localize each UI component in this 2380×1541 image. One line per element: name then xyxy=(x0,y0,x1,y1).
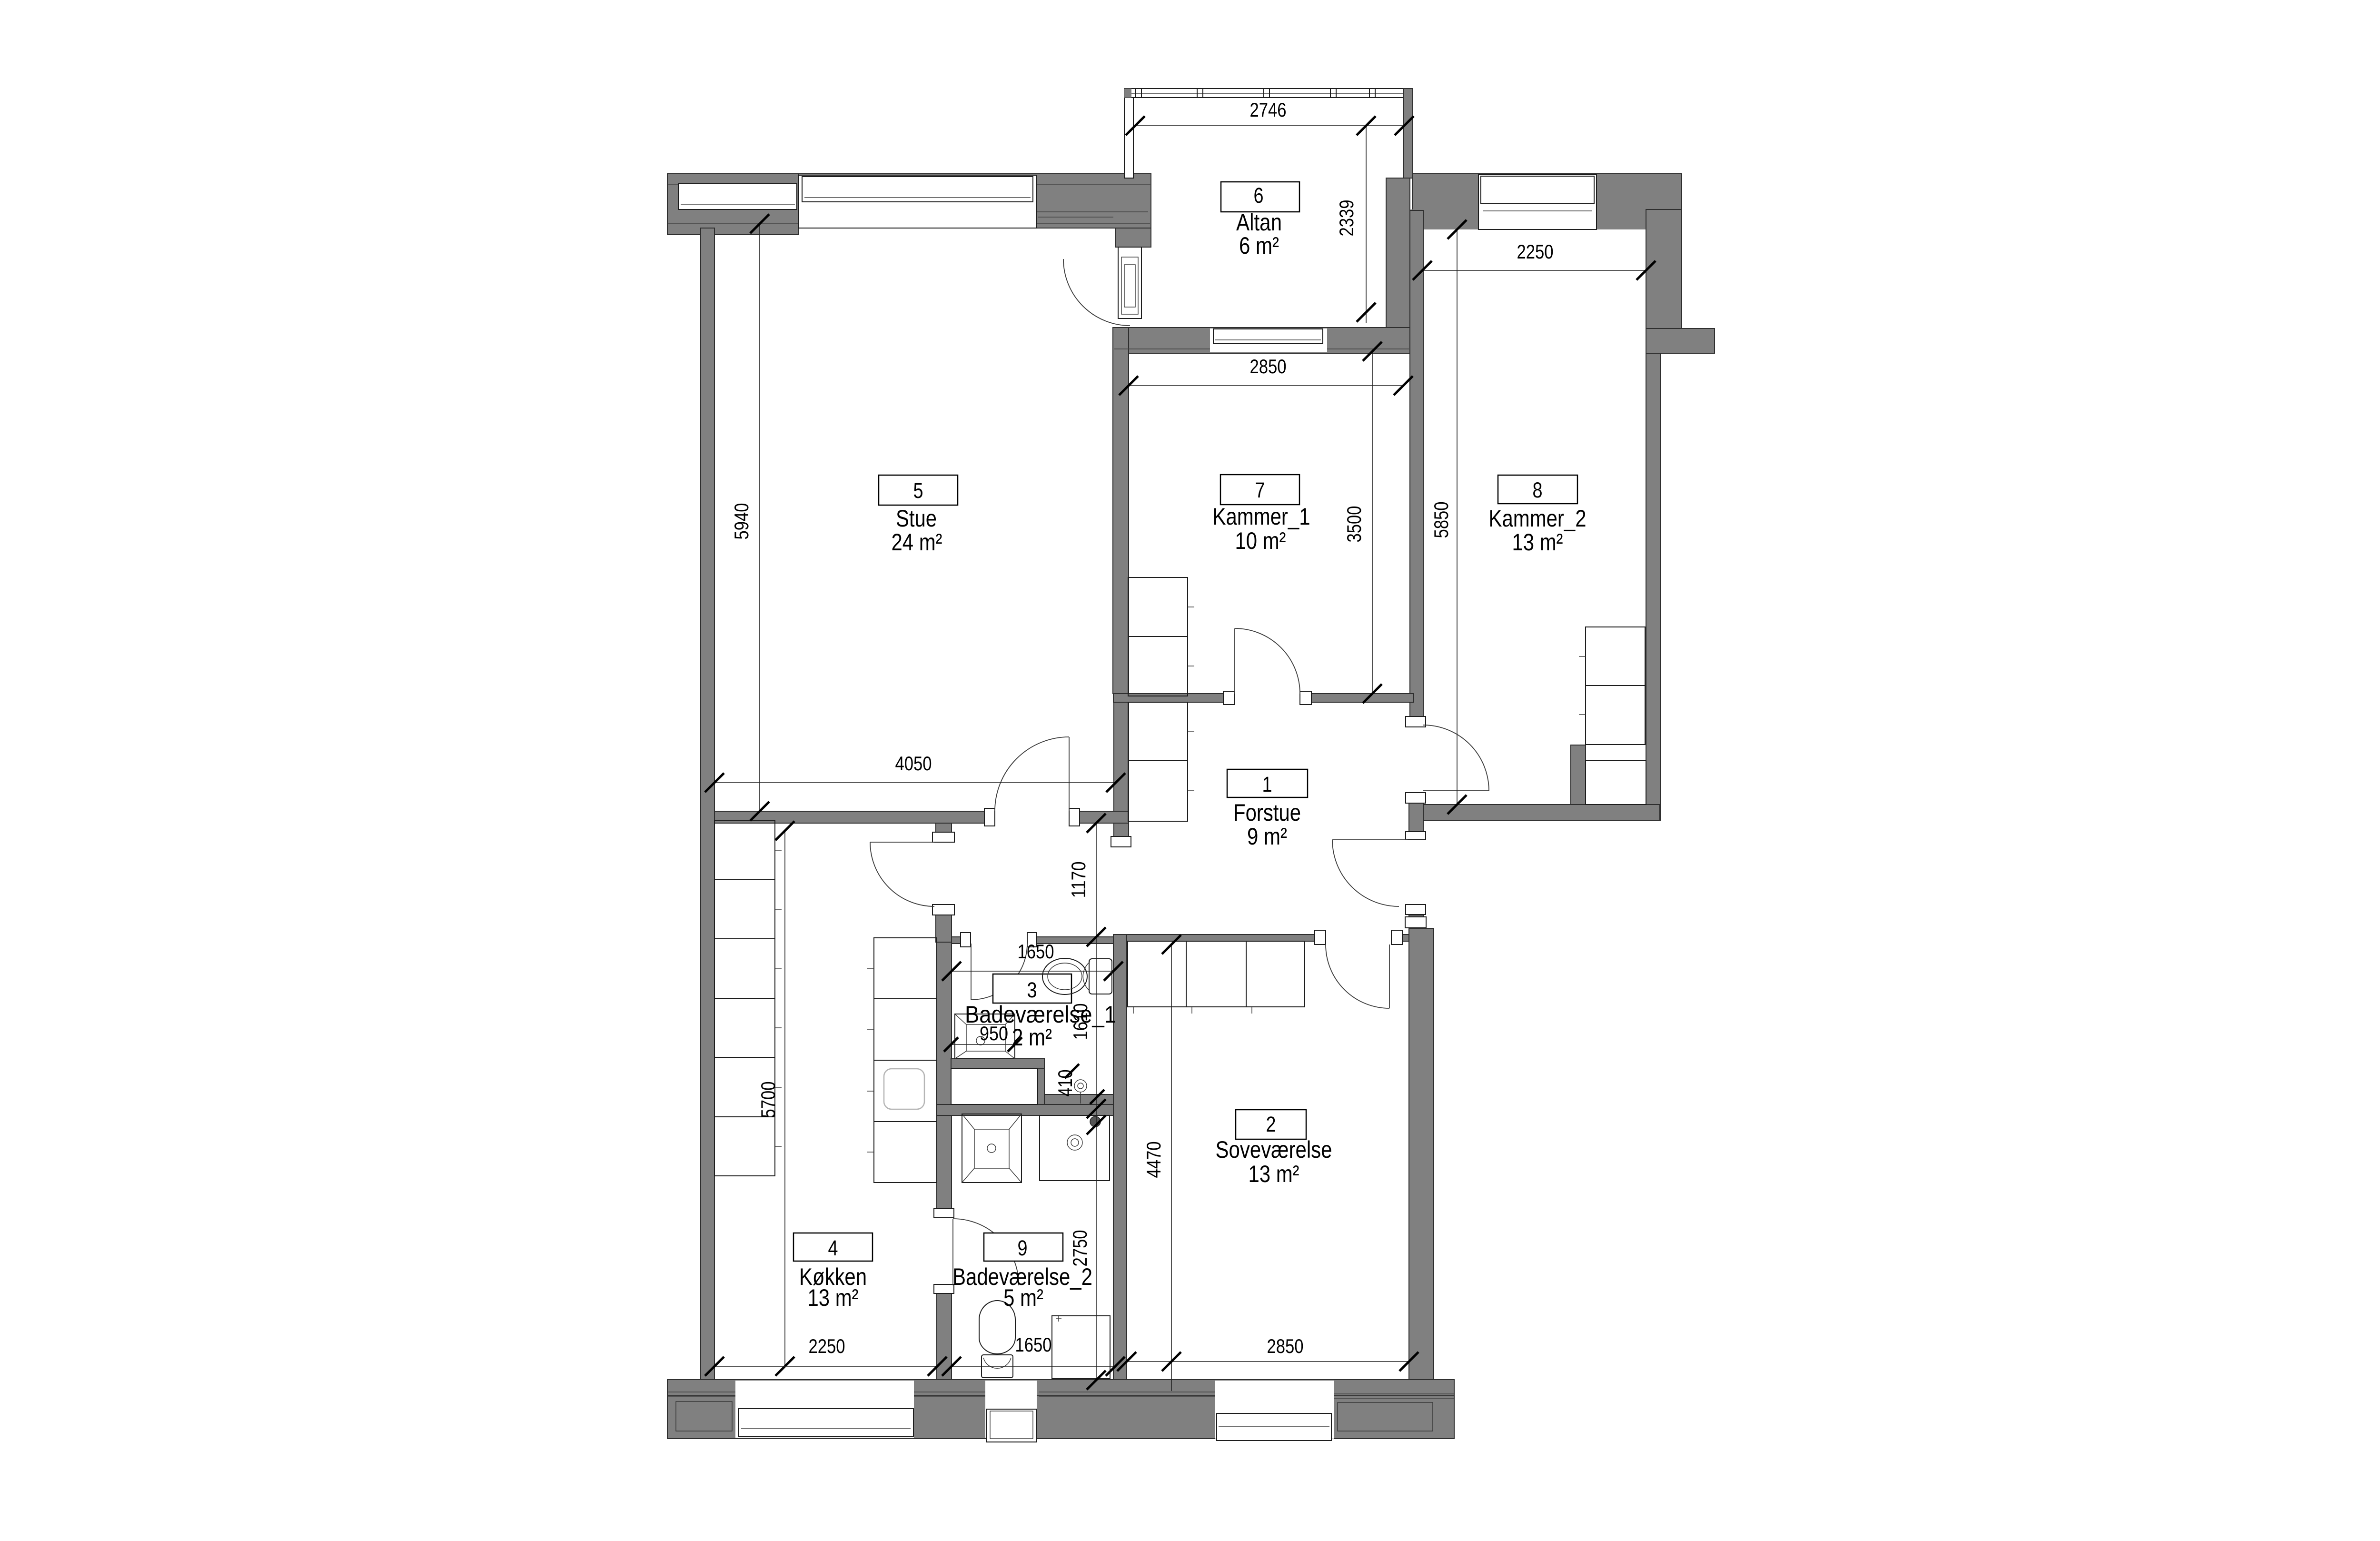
svg-text:10 m²: 10 m² xyxy=(1235,527,1286,554)
svg-text:2250: 2250 xyxy=(809,1335,845,1357)
svg-text:5 m²: 5 m² xyxy=(1003,1284,1043,1311)
svg-text:2250: 2250 xyxy=(1517,240,1554,263)
svg-text:1650: 1650 xyxy=(1015,1333,1052,1356)
svg-text:5940: 5940 xyxy=(730,503,753,540)
svg-text:9: 9 xyxy=(1018,1236,1028,1260)
svg-text:4470: 4470 xyxy=(1142,1142,1165,1178)
svg-text:6 m²: 6 m² xyxy=(1239,232,1279,259)
svg-text:13 m²: 13 m² xyxy=(1512,529,1563,556)
svg-text:13 m²: 13 m² xyxy=(808,1284,859,1311)
svg-text:3: 3 xyxy=(1027,978,1037,1002)
svg-text:5700: 5700 xyxy=(757,1082,779,1118)
svg-text:Soveværelse: Soveværelse xyxy=(1216,1136,1332,1163)
svg-text:5: 5 xyxy=(913,478,923,503)
svg-text:5850: 5850 xyxy=(1430,502,1452,538)
svg-text:8: 8 xyxy=(1533,478,1543,502)
svg-text:410: 410 xyxy=(1054,1070,1076,1097)
svg-text:2746: 2746 xyxy=(1250,99,1287,121)
svg-text:Kammer_2: Kammer_2 xyxy=(1489,505,1587,532)
svg-text:2850: 2850 xyxy=(1250,355,1287,378)
svg-text:Altan: Altan xyxy=(1236,209,1282,236)
svg-text:Forstue: Forstue xyxy=(1233,799,1301,826)
svg-text:13 m²: 13 m² xyxy=(1249,1161,1299,1187)
svg-text:3500: 3500 xyxy=(1343,506,1365,543)
svg-text:2850: 2850 xyxy=(1267,1335,1304,1357)
svg-text:24 m²: 24 m² xyxy=(892,529,942,556)
svg-text:Stue: Stue xyxy=(896,505,937,532)
svg-text:9 m²: 9 m² xyxy=(1247,823,1287,850)
svg-text:6: 6 xyxy=(1254,183,1264,208)
svg-text:2 m²: 2 m² xyxy=(1012,1024,1052,1051)
svg-text:7: 7 xyxy=(1255,478,1265,502)
svg-text:2: 2 xyxy=(1266,1112,1276,1136)
svg-text:2750: 2750 xyxy=(1069,1230,1091,1267)
svg-text:1170: 1170 xyxy=(1067,862,1090,898)
svg-text:1650: 1650 xyxy=(1018,940,1054,963)
svg-text:4050: 4050 xyxy=(895,752,932,775)
svg-text:Kammer_1: Kammer_1 xyxy=(1213,503,1310,530)
svg-text:1: 1 xyxy=(1262,772,1272,796)
svg-text:2339: 2339 xyxy=(1335,200,1358,237)
svg-text:4: 4 xyxy=(828,1236,838,1260)
